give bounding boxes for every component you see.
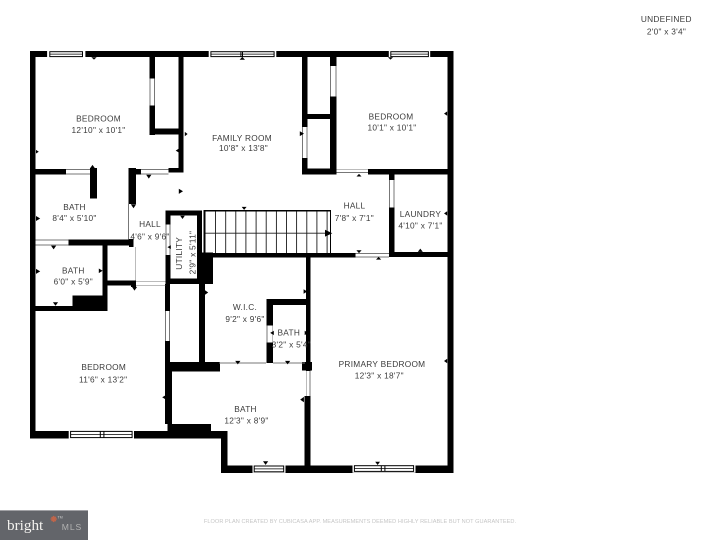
svg-text:BEDROOM: BEDROOM [81,362,126,372]
svg-text:12'3" x 18'7": 12'3" x 18'7" [355,371,404,381]
svg-text:FAMILY ROOM: FAMILY ROOM [212,133,272,143]
svg-text:4'6" x 9'6": 4'6" x 9'6" [130,232,169,242]
svg-text:10'1" x 10'1": 10'1" x 10'1" [367,123,416,133]
svg-text:12'3" x 8'9": 12'3" x 8'9" [224,416,268,426]
svg-text:BATH: BATH [63,202,86,212]
svg-text:HALL: HALL [344,201,366,211]
svg-text:PRIMARY BEDROOM: PRIMARY BEDROOM [339,359,426,369]
svg-text:TM: TM [58,515,63,519]
svg-text:FLOOR PLAN CREATED BY CUBICASA: FLOOR PLAN CREATED BY CUBICASA APP. MEAS… [204,519,517,525]
svg-text:2'9" x 5'11": 2'9" x 5'11" [188,231,198,275]
svg-text:BATH: BATH [278,327,301,337]
svg-text:MLS: MLS [62,522,82,532]
svg-text:10'8" x 13'8": 10'8" x 13'8" [219,143,268,153]
svg-text:UTILITY: UTILITY [174,237,184,270]
svg-text:6'0" x 5'9": 6'0" x 5'9" [54,276,93,286]
svg-text:BATH: BATH [234,404,257,414]
svg-text:BEDROOM: BEDROOM [76,114,121,124]
svg-text:BATH: BATH [62,265,85,275]
svg-text:3'2" x 5'4": 3'2" x 5'4" [272,339,311,349]
svg-text:11'6" x 13'2": 11'6" x 13'2" [79,374,127,384]
svg-text:BEDROOM: BEDROOM [369,112,414,122]
svg-text:UNDEFINED: UNDEFINED [641,14,692,24]
svg-text:9'2" x 9'6": 9'2" x 9'6" [225,314,264,324]
svg-text:2'0" x 3'4": 2'0" x 3'4" [647,27,686,37]
svg-text:8'4" x 5'10": 8'4" x 5'10" [52,213,96,223]
svg-text:4'10" x 7'1": 4'10" x 7'1" [398,220,442,230]
svg-text:W.I.C.: W.I.C. [233,302,257,312]
svg-text:bright: bright [7,517,44,534]
svg-text:7'8" x 7'1": 7'8" x 7'1" [335,213,374,223]
svg-text:LAUNDRY: LAUNDRY [400,209,442,219]
svg-text:HALL: HALL [139,219,161,229]
svg-text:12'10" x 10'1": 12'10" x 10'1" [72,125,126,135]
